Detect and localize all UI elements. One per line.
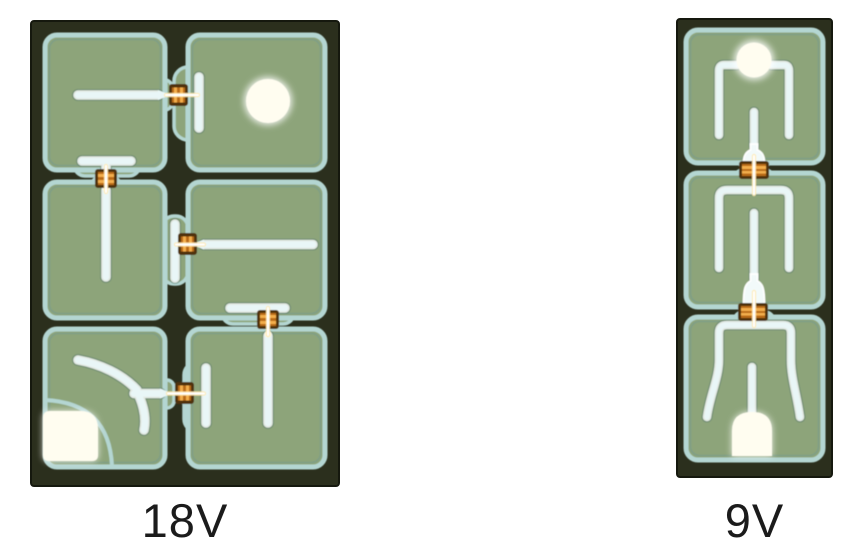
die-18v-figure: 18V <box>30 20 340 544</box>
die-surface <box>43 35 325 467</box>
circle-bond-pad <box>737 43 772 78</box>
die-9v-micrograph <box>676 18 833 478</box>
micrograph-figure: 18V <box>0 0 854 549</box>
circle-bond-pad <box>246 79 290 123</box>
die-9v-caption: 9V <box>676 497 833 544</box>
die-cell <box>45 35 165 170</box>
die-18v-micrograph <box>30 20 340 487</box>
die-9v-figure: 9V <box>676 18 833 544</box>
square-bond-pad <box>43 411 98 461</box>
metal-traces <box>707 65 800 417</box>
die-18v-caption: 18V <box>30 497 340 544</box>
die-surface <box>686 30 823 460</box>
dome-bond-pad <box>732 412 772 456</box>
